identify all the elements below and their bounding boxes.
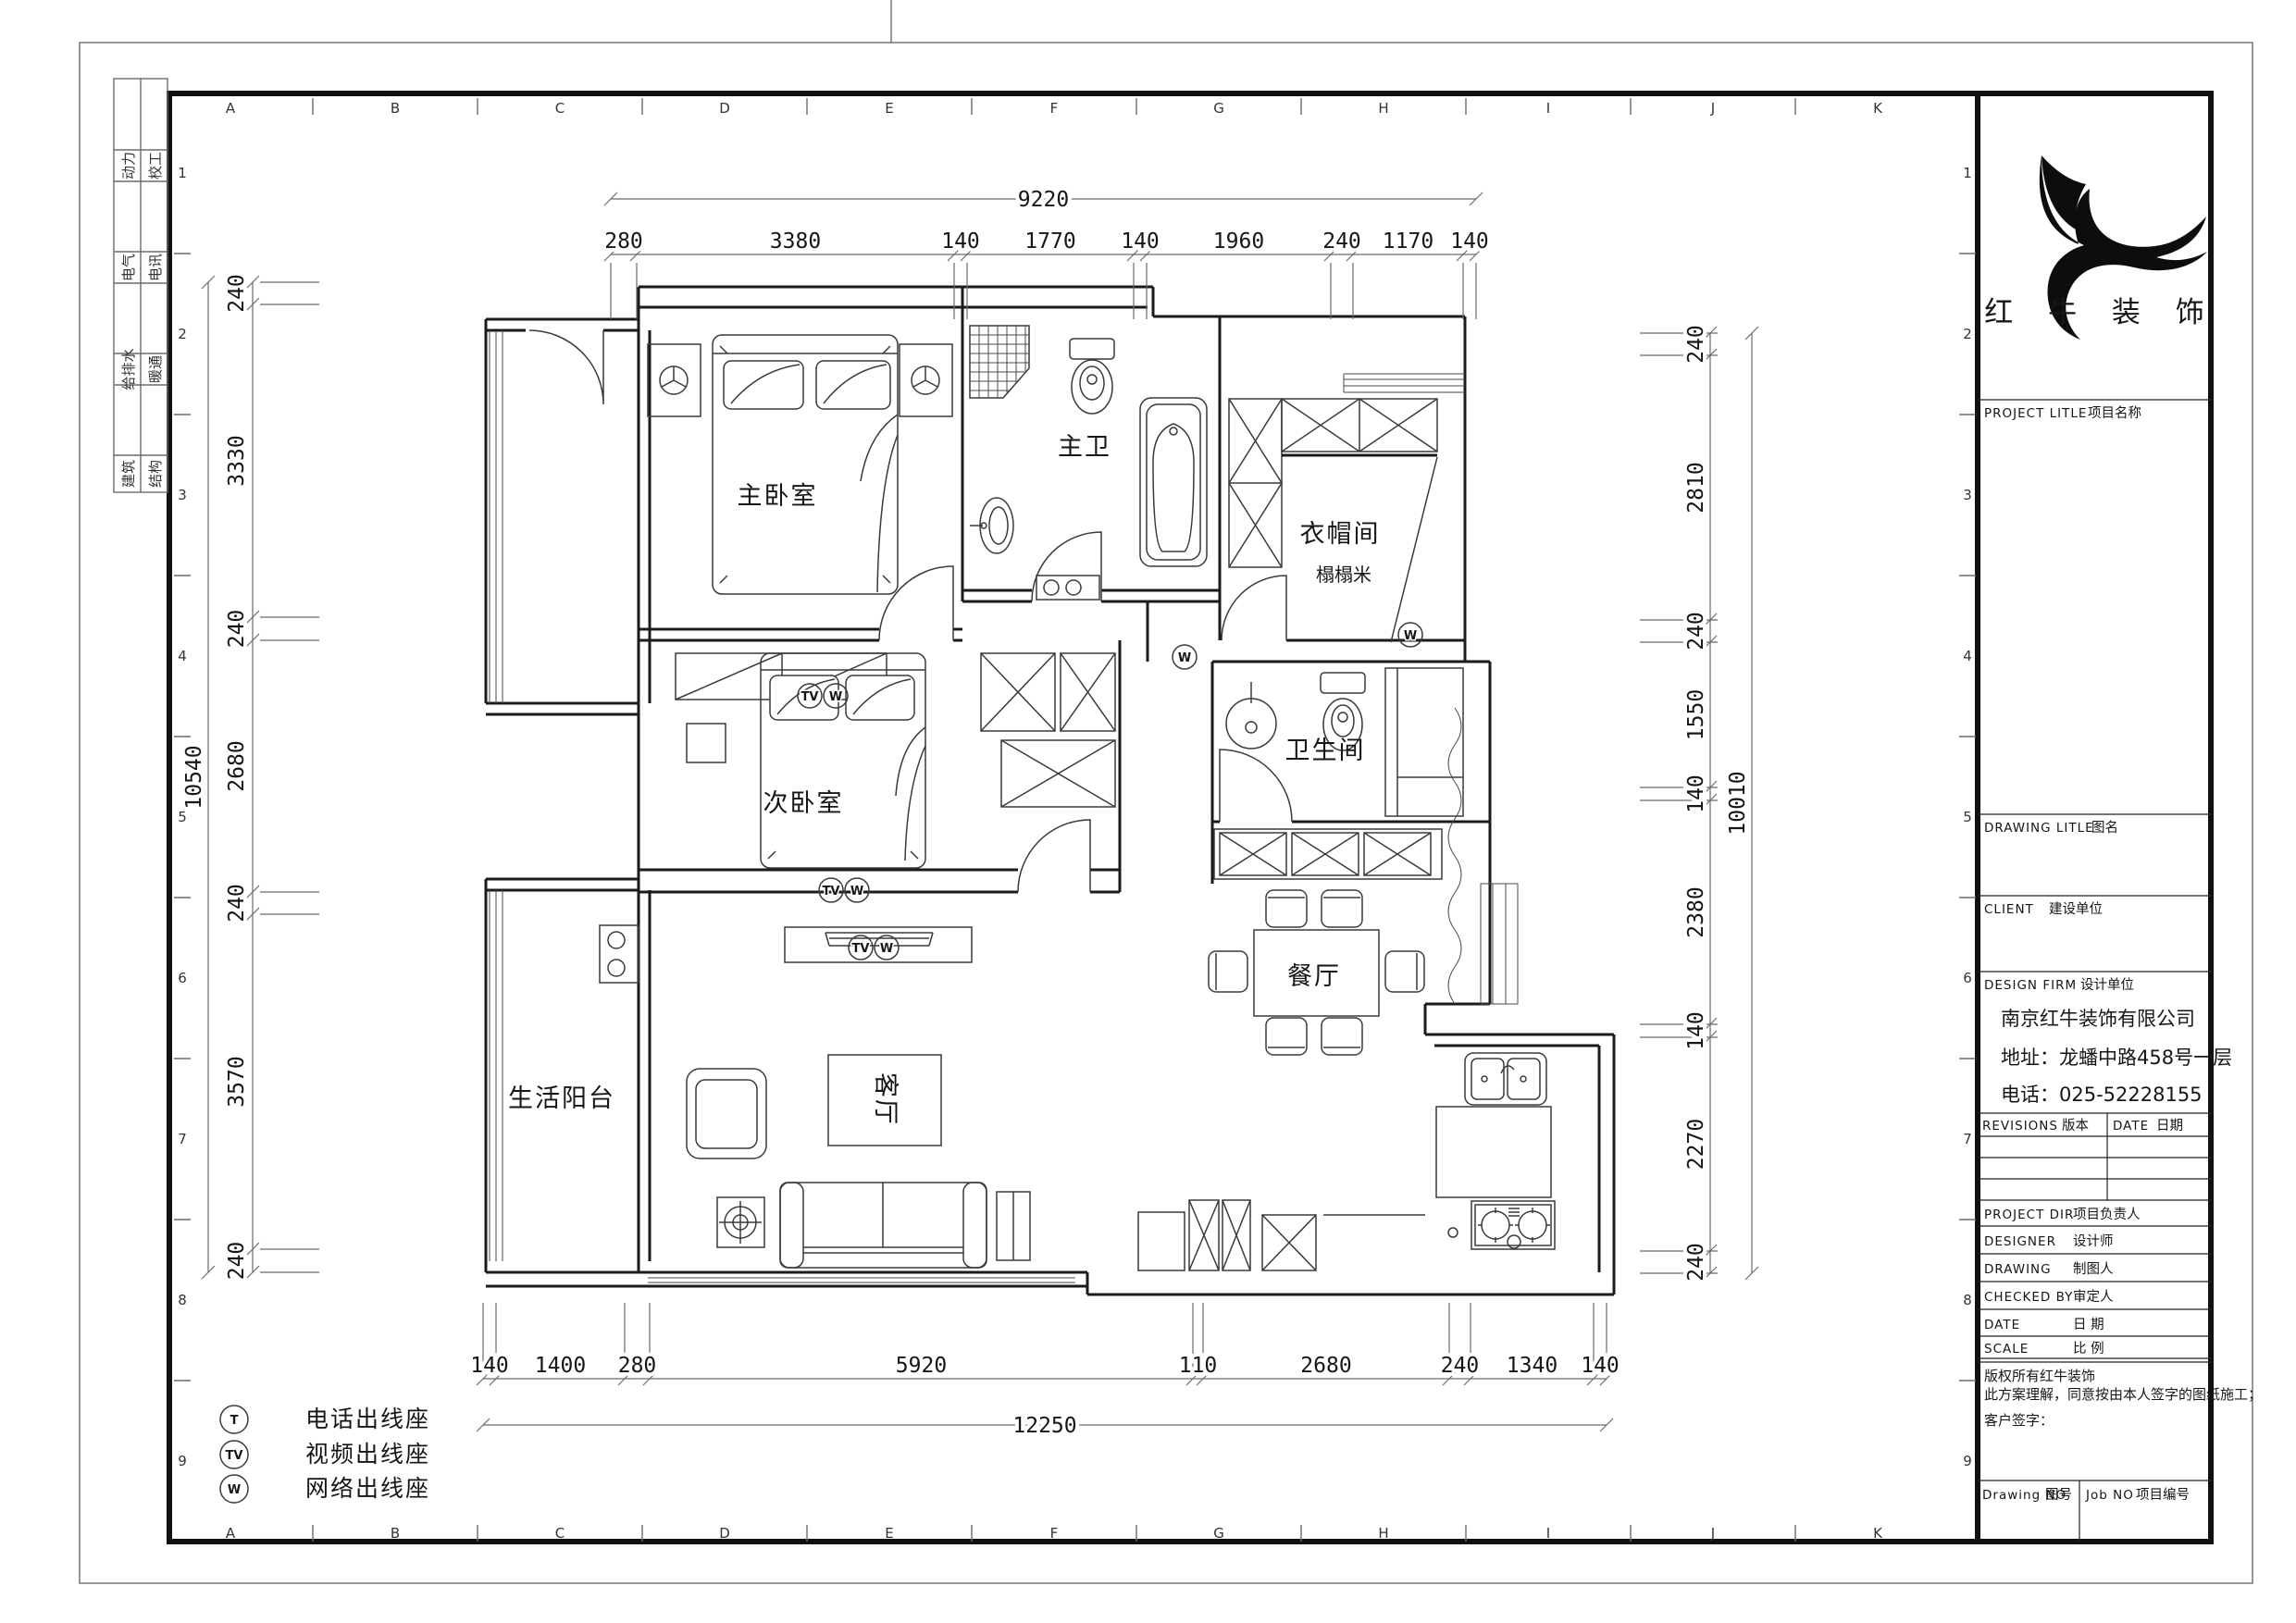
grid-number-right: 5 bbox=[1963, 809, 1972, 825]
dim-value: 240 bbox=[1684, 612, 1708, 650]
grid-letter-top: K bbox=[1873, 100, 1883, 117]
tb-checked-cn: 审定人 bbox=[2073, 1289, 2114, 1305]
cloak-window bbox=[1344, 374, 1465, 392]
grid-letter-bottom: H bbox=[1378, 1525, 1388, 1542]
outlet-label: T bbox=[230, 1414, 239, 1428]
outlet-label: W bbox=[829, 690, 842, 704]
grid-letter-top: J bbox=[1710, 100, 1715, 117]
grid-number-left: 9 bbox=[178, 1453, 187, 1469]
tb-revisions-cn: 版本 bbox=[2062, 1118, 2089, 1134]
room-label-master-bath: 主卫 bbox=[1058, 433, 1111, 462]
tb-drawing-by-en: DRAWING bbox=[1984, 1262, 2052, 1277]
dim-value: 280 bbox=[604, 229, 643, 254]
grid-letter-top: H bbox=[1378, 100, 1388, 117]
phone-outlet-icon: T bbox=[220, 1406, 248, 1433]
master-door bbox=[879, 566, 953, 640]
tb-scale-cn: 比 例 bbox=[2073, 1341, 2104, 1357]
dim-value: 240 bbox=[225, 610, 249, 649]
title-block: 红 牛 装 饰 PROJECT LITLE 项目名称 DRAWING LITLE… bbox=[1978, 155, 2262, 1542]
washer-box bbox=[600, 925, 639, 983]
cabinet-row bbox=[1214, 829, 1442, 879]
tb-client-cn: 建设单位 bbox=[2049, 901, 2103, 917]
outer-border bbox=[80, 43, 2253, 1583]
shower-icon bbox=[970, 326, 1029, 398]
grid-letter-bottom: D bbox=[719, 1525, 730, 1542]
grid-number-right: 6 bbox=[1963, 970, 1972, 986]
tb-scale-en: SCALE bbox=[1984, 1342, 2029, 1357]
tb-copyright: 版权所有红牛装饰 bbox=[1984, 1368, 2095, 1384]
sofa-icon bbox=[780, 1183, 987, 1268]
tv-outlet-icon: TV bbox=[220, 1441, 248, 1468]
grid-letter-bottom: A bbox=[226, 1525, 236, 1542]
dim-value: 2270 bbox=[1684, 1119, 1708, 1170]
dim-value: 140 bbox=[1121, 229, 1160, 254]
tb-signature: 客户签字： bbox=[1984, 1412, 2054, 1429]
sofa-side-table bbox=[997, 1192, 1030, 1260]
grid-letter-bottom: C bbox=[555, 1525, 565, 1542]
grid-letter-bottom: J bbox=[1710, 1525, 1715, 1542]
room-label-cloak: 衣帽间 bbox=[1300, 520, 1381, 549]
kitchen-sink-icon bbox=[1465, 1053, 1546, 1105]
grid-letter-top: I bbox=[1546, 100, 1550, 117]
grid-letter-top: A bbox=[226, 100, 236, 117]
paper-frame bbox=[80, 0, 2253, 1583]
outlet-label: W bbox=[1178, 651, 1191, 665]
grid-letter-top: E bbox=[885, 100, 893, 117]
grid-letter-top: F bbox=[1050, 100, 1059, 117]
dim-value: 3330 bbox=[225, 435, 249, 486]
dim-value: 140 bbox=[470, 1354, 509, 1378]
bath-cabinet bbox=[1036, 576, 1099, 600]
dim-value: 140 bbox=[1450, 229, 1489, 254]
floorplan-svg: 动力 电气 给排水 建筑 校工 电讯 暖通 结构 AABBCCDDEEFFGGH… bbox=[0, 0, 2296, 1623]
sliding-door-line bbox=[1391, 457, 1437, 642]
company-name: 红 牛 装 饰 bbox=[1984, 296, 2217, 329]
grid-letter-bottom: I bbox=[1546, 1525, 1550, 1542]
wardrobe-top bbox=[1282, 399, 1437, 455]
outlet-label: W bbox=[850, 885, 863, 898]
grid-letter-top: D bbox=[719, 100, 730, 117]
grid-number-right: 2 bbox=[1963, 326, 1972, 342]
dim-value: 140 bbox=[1581, 1354, 1620, 1378]
grid-letter-bottom: B bbox=[391, 1525, 400, 1542]
legend-label-video: 视频出线座 bbox=[305, 1441, 430, 1468]
tb-designer-en: DESIGNER bbox=[1984, 1234, 2056, 1249]
tb-date2-cn: 日 期 bbox=[2073, 1317, 2104, 1332]
room-label-balcony: 生活阳台 bbox=[508, 1084, 615, 1113]
round-sink-icon bbox=[1226, 682, 1276, 749]
kitchen-cabinets bbox=[1138, 1200, 1425, 1270]
grid-letter-bottom: F bbox=[1050, 1525, 1059, 1542]
tb-project-dir-en: PROJECT DIR bbox=[1984, 1208, 2074, 1222]
cloak-door bbox=[1222, 576, 1286, 640]
dim-value: 240 bbox=[1684, 1243, 1708, 1282]
tb-drawing-title-cn: 图名 bbox=[2091, 820, 2118, 836]
walls bbox=[486, 287, 1614, 1295]
dim-value: 2680 bbox=[225, 740, 249, 791]
room-label-tatami: 榻榻米 bbox=[1316, 564, 1371, 586]
drawing-sheet: 动力 电气 给排水 建筑 校工 电讯 暖通 结构 AABBCCDDEEFFGGH… bbox=[0, 0, 2296, 1623]
dim-overall-value: 12250 bbox=[1012, 1414, 1076, 1438]
network-outlet-icon: W bbox=[875, 935, 899, 960]
tb-date-en: DATE bbox=[2113, 1119, 2149, 1134]
tb-firm-address: 地址：龙蟠中路458号一层 bbox=[2001, 1047, 2232, 1069]
balcony1-window bbox=[490, 330, 503, 703]
disc-c2-r4: 结构 bbox=[147, 460, 164, 488]
outlet-label: TV bbox=[801, 690, 819, 704]
dim-value: 5920 bbox=[896, 1354, 947, 1378]
grid-number-left: 1 bbox=[178, 165, 187, 181]
dim-value: 1340 bbox=[1507, 1354, 1558, 1378]
grid-number-right: 7 bbox=[1963, 1131, 1972, 1147]
double-bed-icon bbox=[761, 653, 925, 868]
tb-project-title-en: PROJECT LITLE bbox=[1984, 406, 2087, 421]
room-label-living: 客厅 bbox=[871, 1072, 900, 1126]
double-bed-icon bbox=[713, 335, 898, 594]
grid-number-right: 1 bbox=[1963, 165, 1972, 181]
network-outlet-icon: W bbox=[220, 1475, 248, 1503]
tb-revisions-en: REVISIONS bbox=[1982, 1119, 2058, 1134]
grid-number-right: 3 bbox=[1963, 487, 1972, 503]
tb-designer-cn: 设计师 bbox=[2073, 1233, 2114, 1249]
grid-number-left: 2 bbox=[178, 326, 187, 342]
dim-value: 2380 bbox=[1684, 886, 1708, 937]
outlet-label: W bbox=[1404, 629, 1417, 643]
grid-number-right: 8 bbox=[1963, 1292, 1972, 1308]
discipline-table: 动力 电气 给排水 建筑 校工 电讯 暖通 结构 bbox=[114, 79, 168, 492]
outlet-label: TV bbox=[226, 1449, 243, 1463]
tb-agreement: 此方案理解，同意按由本人签字的图纸施工； bbox=[1984, 1386, 2262, 1403]
dim-value: 240 bbox=[225, 884, 249, 923]
grid-number-left: 3 bbox=[178, 487, 187, 503]
grid-number-right: 4 bbox=[1963, 648, 1972, 664]
sink-icon bbox=[970, 498, 1013, 553]
tb-job-no-en: Job NO bbox=[2085, 1488, 2134, 1503]
dim-value: 240 bbox=[1684, 325, 1708, 364]
grid-number-right: 9 bbox=[1963, 1453, 1972, 1469]
outlet-label: TV bbox=[823, 885, 840, 898]
bath-cabinet-knob bbox=[1066, 580, 1081, 595]
tb-firm-phone: 电话：025-52228155 bbox=[2001, 1084, 2203, 1106]
dim-value: 1400 bbox=[535, 1354, 586, 1378]
master-bedroom-furniture bbox=[648, 335, 952, 594]
room-label-master: 主卧室 bbox=[738, 482, 818, 511]
dim-value: 240 bbox=[225, 274, 249, 313]
bed2-furniture bbox=[676, 653, 1115, 868]
gas-point bbox=[1448, 1228, 1458, 1237]
grid-number-left: 5 bbox=[178, 809, 187, 825]
dim-value: 110 bbox=[1179, 1354, 1218, 1378]
dim-value: 240 bbox=[1441, 1354, 1480, 1378]
tb-project-dir-cn: 项目负责人 bbox=[2073, 1207, 2141, 1222]
dim-overall-value: 10540 bbox=[182, 745, 206, 809]
balcony1-door bbox=[529, 330, 603, 404]
floor-lamp-icon bbox=[717, 1197, 764, 1247]
disc-c1-r1: 动力 bbox=[120, 152, 137, 180]
grid-letter-top: B bbox=[391, 100, 400, 117]
tb-design-firm-en: DESIGN FIRM bbox=[1984, 978, 2077, 993]
grid-letter-top: G bbox=[1213, 100, 1224, 117]
tv-outlet-icon: TV bbox=[819, 878, 843, 902]
disc-c2-r2: 电讯 bbox=[147, 254, 164, 281]
grid-number-left: 7 bbox=[178, 1131, 187, 1147]
disc-c2-r3: 暖通 bbox=[147, 355, 164, 383]
dim-value: 1170 bbox=[1383, 229, 1433, 254]
dim-value: 240 bbox=[225, 1242, 249, 1281]
disc-c1-r2: 电气 bbox=[120, 254, 137, 281]
dim-value: 1770 bbox=[1024, 229, 1075, 254]
disc-c2-r1: 校工 bbox=[147, 152, 164, 180]
grid-letter-bottom: G bbox=[1213, 1525, 1224, 1542]
network-outlet-icon: W bbox=[1398, 623, 1422, 647]
tb-date2-en: DATE bbox=[1984, 1318, 2020, 1332]
wardrobe-column bbox=[1229, 399, 1282, 567]
outlet-label: W bbox=[228, 1483, 241, 1497]
bath-cabinet-knob bbox=[1044, 580, 1059, 595]
outlet-symbols: TVWTVWTVWWWTTVW bbox=[220, 623, 1422, 1503]
kitchen-fixtures bbox=[1138, 1053, 1555, 1270]
dim-value: 2680 bbox=[1300, 1354, 1351, 1378]
dim-overall-value: 9220 bbox=[1018, 188, 1069, 212]
disc-c1-r3: 给排水 bbox=[120, 348, 137, 390]
grid-letter-bottom: E bbox=[885, 1525, 893, 1542]
dim-value: 140 bbox=[941, 229, 980, 254]
side-table bbox=[687, 724, 726, 762]
bed2-door bbox=[1018, 820, 1090, 892]
grid-number-left: 4 bbox=[178, 648, 187, 664]
kitchen-counter bbox=[1436, 1107, 1551, 1197]
tb-design-firm-cn: 设计单位 bbox=[2080, 977, 2134, 993]
tb-checked-en: CHECKED BY bbox=[1984, 1290, 2073, 1305]
legend: 电话出线座 视频出线座 网络出线座 bbox=[305, 1406, 430, 1502]
dim-value: 140 bbox=[1684, 774, 1708, 813]
network-outlet-icon: W bbox=[845, 878, 869, 902]
tb-job-no-cn: 项目编号 bbox=[2136, 1487, 2190, 1503]
tb-date-cn: 日期 bbox=[2156, 1118, 2183, 1134]
dim-value: 2810 bbox=[1684, 462, 1708, 513]
legend-label-network: 网络出线座 bbox=[305, 1475, 430, 1502]
lamp-icon bbox=[912, 366, 939, 394]
grid-number-left: 6 bbox=[178, 970, 187, 986]
room-label-bed2: 次卧室 bbox=[763, 789, 844, 818]
wardrobe-boxes bbox=[981, 653, 1115, 807]
disc-c1-r4: 建筑 bbox=[120, 460, 137, 488]
dim-value: 1960 bbox=[1213, 229, 1264, 254]
tb-drawing-no-cn: 图号 bbox=[2045, 1488, 2072, 1503]
toilet-icon bbox=[1070, 339, 1114, 414]
bath2-door bbox=[1220, 750, 1292, 822]
outlet-label: TV bbox=[852, 942, 870, 956]
washer-valve bbox=[608, 932, 625, 948]
shower-cabinet bbox=[1385, 668, 1463, 816]
living-furniture bbox=[687, 927, 1030, 1268]
room-label-dining: 餐厅 bbox=[1287, 962, 1341, 991]
dim-value: 3380 bbox=[770, 229, 821, 254]
grid-number-left: 8 bbox=[178, 1292, 187, 1308]
grid-letter-top: C bbox=[555, 100, 565, 117]
tb-client-en: CLIENT bbox=[1984, 902, 2034, 917]
dim-value: 3570 bbox=[225, 1056, 249, 1107]
lamp-icon bbox=[660, 366, 688, 394]
dim-value: 140 bbox=[1684, 1011, 1708, 1050]
tb-drawing-title-en: DRAWING LITLE bbox=[1984, 821, 2094, 836]
dim-value: 1550 bbox=[1684, 689, 1708, 740]
dim-overall-value: 10010 bbox=[1726, 771, 1750, 835]
legend-label-phone: 电话出线座 bbox=[305, 1406, 430, 1432]
bath2-fixtures bbox=[1214, 668, 1463, 879]
doors bbox=[529, 330, 1292, 892]
stove-icon bbox=[1471, 1201, 1555, 1249]
balcony2-window bbox=[490, 890, 503, 1261]
armchair-seat bbox=[696, 1080, 757, 1148]
bathtub-icon bbox=[1140, 398, 1207, 566]
washer-valve bbox=[608, 960, 625, 976]
dim-value: 240 bbox=[1322, 229, 1361, 254]
grid-references: AABBCCDDEEFFGGHHIIJJKK112233445566778899 bbox=[174, 98, 1976, 1542]
grid-letter-bottom: K bbox=[1873, 1525, 1883, 1542]
tb-drawing-by-cn: 制图人 bbox=[2073, 1261, 2114, 1277]
living-south-window bbox=[648, 1278, 1075, 1282]
tv-outlet-icon: TV bbox=[849, 935, 873, 960]
network-outlet-icon: W bbox=[1173, 645, 1197, 669]
room-label-bath: 卫生间 bbox=[1285, 737, 1366, 765]
dim-value: 280 bbox=[618, 1354, 657, 1378]
dining-east-window bbox=[1481, 884, 1518, 1004]
balcony2-items bbox=[600, 925, 639, 983]
master-bath-fixtures bbox=[970, 326, 1207, 600]
tb-project-title-cn: 项目名称 bbox=[2088, 405, 2141, 421]
curtain-wave bbox=[1448, 708, 1461, 1004]
outlet-label: W bbox=[880, 942, 893, 956]
tb-firm-name: 南京红牛装饰有限公司 bbox=[2001, 1008, 2195, 1030]
inner-border bbox=[169, 93, 2211, 1542]
